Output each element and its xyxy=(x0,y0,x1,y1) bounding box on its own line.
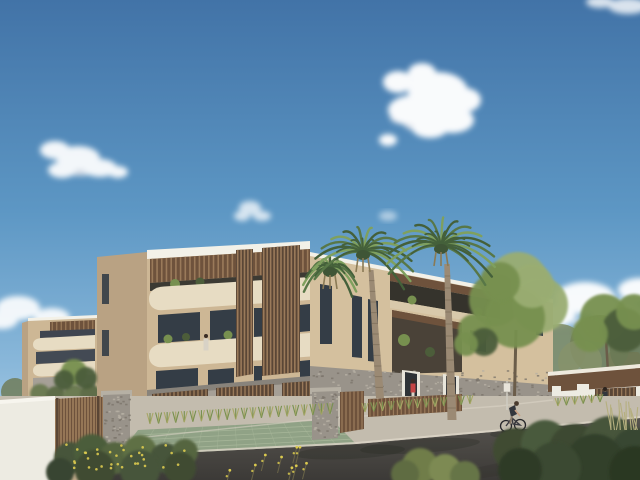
stone-speckle xyxy=(318,373,320,375)
yellow-flowers xyxy=(121,466,124,469)
stone-speckle xyxy=(427,390,429,392)
stone-speckle xyxy=(314,393,316,395)
stone-speckle xyxy=(518,393,520,395)
cloud-puff xyxy=(379,211,397,221)
twig-flower xyxy=(226,475,228,477)
yellow-flowers xyxy=(100,465,103,468)
stone-speckle xyxy=(314,397,316,399)
stone-speckle xyxy=(113,426,115,428)
stone-speckle xyxy=(104,419,106,421)
stone-speckle xyxy=(316,401,318,403)
stone-speckle xyxy=(384,371,386,373)
yellow-flowers xyxy=(162,466,165,469)
stone-speckle xyxy=(531,386,533,388)
twig-flower xyxy=(299,446,302,449)
stone-speckle xyxy=(542,380,544,382)
tree-foliage xyxy=(75,367,97,389)
stone-speckle xyxy=(353,371,355,373)
stone-speckle xyxy=(117,399,119,401)
stone-speckle xyxy=(438,389,440,391)
stone-speckle xyxy=(117,396,119,398)
cloud-puff xyxy=(234,211,250,221)
figure-body xyxy=(411,384,416,393)
yellow-flowers xyxy=(115,454,118,457)
stone-speckle xyxy=(317,429,319,431)
cloud-puff xyxy=(108,166,128,178)
stone-speckle xyxy=(518,389,520,391)
stone-speckle xyxy=(315,415,317,417)
stone-speckle xyxy=(120,403,122,405)
stone-speckle xyxy=(493,389,495,391)
stone-speckle xyxy=(334,393,336,395)
stone-speckle xyxy=(369,387,371,389)
stone-speckle xyxy=(481,394,483,396)
stone-speckle xyxy=(314,429,316,431)
yellow-flowers xyxy=(116,463,119,466)
stone-speckle xyxy=(477,379,479,381)
stone-speckle xyxy=(317,418,319,420)
stone-speckle xyxy=(336,417,338,419)
yellow-flowers xyxy=(134,462,137,465)
stone-speckle xyxy=(323,424,325,426)
twig-flower xyxy=(261,460,263,462)
stone-speckle xyxy=(313,375,315,377)
cloud-puff xyxy=(449,88,481,112)
twig-flower xyxy=(292,471,294,473)
stone-speckle xyxy=(326,430,328,432)
stone-speckle xyxy=(335,426,337,428)
stone-speckle xyxy=(501,392,503,394)
balcony-plant xyxy=(398,334,410,346)
stone-speckle xyxy=(348,373,350,375)
stone-speckle xyxy=(116,401,118,403)
stone-speckle xyxy=(384,391,386,393)
stone-speckle xyxy=(320,433,322,435)
yellow-flowers xyxy=(137,462,140,465)
driveway-gate-panel-bg xyxy=(340,391,364,433)
stone-speckle xyxy=(107,403,109,405)
stone-speckle xyxy=(334,435,336,437)
stone-speckle xyxy=(108,411,110,413)
stone-speckle xyxy=(323,397,325,399)
floor2-window xyxy=(254,308,262,338)
twig-flower xyxy=(302,468,304,470)
stone-speckle xyxy=(125,404,127,406)
yellow-flowers xyxy=(183,449,186,452)
terrace-plant xyxy=(408,296,417,305)
twig-flower xyxy=(228,469,231,472)
stone-speckle xyxy=(108,440,110,442)
stone-speckle xyxy=(125,439,127,441)
twig-flower xyxy=(277,462,279,464)
stone-speckle xyxy=(106,411,108,413)
stone-speckle xyxy=(516,386,518,388)
stone-speckle xyxy=(369,376,371,378)
stone-speckle xyxy=(129,399,131,401)
stone-speckle xyxy=(125,425,127,427)
stone-speckle xyxy=(351,380,353,382)
stone-speckle xyxy=(473,393,475,395)
tree-foliage xyxy=(54,370,74,390)
stone-speckle xyxy=(112,418,114,420)
stone-speckle xyxy=(337,372,339,374)
cloud-puff xyxy=(379,134,397,146)
stone-speckle xyxy=(537,375,539,377)
yellow-flowers xyxy=(73,467,76,470)
yellow-flowers xyxy=(76,448,79,451)
twig-flower xyxy=(288,473,290,475)
stone-speckle xyxy=(400,381,402,383)
balcony-plant xyxy=(425,347,435,357)
stone-speckle xyxy=(113,427,115,429)
stone-speckle xyxy=(113,437,115,439)
yellow-flowers xyxy=(122,449,125,452)
vertical-slat-screen xyxy=(262,245,300,376)
balcony-plant xyxy=(224,331,233,340)
stone-speckle xyxy=(390,391,392,393)
stone-speckle xyxy=(508,378,510,380)
stone-speckle xyxy=(398,384,400,386)
yellow-flowers xyxy=(141,454,144,457)
cloud-puff xyxy=(253,211,271,221)
left-wing-side-wall xyxy=(22,321,28,408)
stone-speckle xyxy=(128,415,130,417)
stone-speckle xyxy=(440,392,442,394)
stone-speckle xyxy=(368,370,370,372)
stone-speckle xyxy=(111,420,113,422)
yellow-flowers xyxy=(95,468,98,471)
stone-speckle xyxy=(337,384,339,386)
figure-head xyxy=(411,379,415,383)
yellow-flowers xyxy=(96,448,99,451)
apartment-building-render xyxy=(0,0,640,480)
yellow-flowers xyxy=(141,446,144,449)
stone-speckle xyxy=(331,378,333,380)
cloud-faint-center xyxy=(379,211,397,221)
stone-speckle xyxy=(104,423,106,425)
stone-speckle xyxy=(350,382,352,384)
stone-speckle xyxy=(332,381,334,383)
yellow-flowers xyxy=(110,467,113,470)
twig-flower xyxy=(305,462,308,465)
yellow-flowers xyxy=(73,462,76,465)
twig-flower xyxy=(254,464,257,467)
stone-speckle xyxy=(372,383,374,385)
stone-speckle xyxy=(319,371,321,373)
stone-speckle xyxy=(326,420,328,422)
yellow-flowers xyxy=(142,458,145,461)
stone-speckle xyxy=(461,372,463,374)
figure-balcony xyxy=(204,334,209,351)
stone-speckle xyxy=(316,422,318,424)
stone-speckle xyxy=(365,385,367,387)
stone-speckle xyxy=(357,374,359,376)
cloud-puff xyxy=(48,162,76,178)
stone-speckle xyxy=(321,375,323,377)
yellow-flowers xyxy=(164,444,167,447)
stone-speckle xyxy=(315,427,317,429)
stone-speckle xyxy=(121,413,123,415)
yellow-flowers xyxy=(138,452,141,455)
stone-speckle xyxy=(440,382,442,384)
yellow-flowers xyxy=(130,455,133,458)
stone-speckle xyxy=(484,384,486,386)
stone-speckle xyxy=(390,373,392,375)
stone-speckle xyxy=(329,424,331,426)
stone-speckle xyxy=(119,429,121,431)
fence-post xyxy=(56,398,59,454)
street-sign xyxy=(504,383,511,392)
yellow-flowers xyxy=(109,451,112,454)
stone-speckle xyxy=(493,376,495,378)
stone-speckle xyxy=(545,377,547,379)
yellow-flowers xyxy=(96,453,99,456)
stone-speckle xyxy=(314,396,316,398)
stone-speckle xyxy=(477,382,479,384)
figure-head xyxy=(204,334,208,338)
stone-speckle xyxy=(495,381,497,383)
twig-flower xyxy=(280,456,283,459)
stone-speckle xyxy=(435,383,437,385)
stone-speckle xyxy=(119,419,121,421)
stone-speckle xyxy=(116,411,118,413)
side-wall-window xyxy=(102,274,109,304)
stone-speckle xyxy=(119,416,121,418)
stone-speckle xyxy=(113,399,115,401)
stone-speckle xyxy=(507,370,509,372)
rider-head xyxy=(514,401,519,406)
stone-speckle xyxy=(399,390,401,392)
stone-speckle xyxy=(336,398,338,400)
stone-speckle xyxy=(316,376,318,378)
twig-flower xyxy=(295,464,298,467)
yellow-flowers xyxy=(120,444,123,447)
twig-flower xyxy=(295,446,298,449)
stone-speckle xyxy=(332,396,334,398)
stone-speckle xyxy=(106,436,108,438)
stone-speckle xyxy=(336,409,338,411)
stone-speckle xyxy=(537,391,539,393)
stone-speckle xyxy=(421,381,423,383)
stair-window xyxy=(352,295,362,358)
vertical-slat-screen xyxy=(236,249,253,377)
floor2-window xyxy=(300,304,310,332)
stone-speckle xyxy=(322,418,324,420)
floor1-window xyxy=(300,360,310,378)
figure-body xyxy=(204,339,209,351)
stone-speckle xyxy=(435,376,437,378)
cloud-puff xyxy=(408,63,436,83)
stone-speckle xyxy=(535,373,537,375)
twig-flower xyxy=(296,452,298,454)
stone-speckle xyxy=(119,427,121,429)
stone-speckle xyxy=(129,419,131,421)
stone-speckle xyxy=(482,370,484,372)
stone-speckle xyxy=(330,427,332,429)
tree-foliage xyxy=(572,316,608,352)
stone-speckle xyxy=(331,394,333,396)
stone-speckle xyxy=(531,385,533,387)
stone-speckle xyxy=(121,433,123,435)
stone-speckle xyxy=(336,428,338,430)
stone-speckle xyxy=(392,371,394,373)
yellow-flowers xyxy=(65,443,68,446)
stone-speckle xyxy=(345,374,347,376)
yellow-flowers xyxy=(110,463,113,466)
twig-flower xyxy=(251,470,253,472)
stone-speckle xyxy=(469,380,471,382)
stone-speckle xyxy=(118,434,120,436)
yellow-flowers xyxy=(84,451,87,454)
yellow-flowers xyxy=(177,463,180,466)
stone-speckle xyxy=(480,375,482,377)
yellow-flowers xyxy=(87,457,90,460)
stone-speckle xyxy=(372,392,374,394)
stone-speckle xyxy=(120,396,122,398)
stone-speckle xyxy=(112,430,114,432)
stone-speckle xyxy=(319,399,321,401)
tree-foliage xyxy=(454,332,478,356)
stone-speckle xyxy=(488,386,490,388)
figure-head xyxy=(603,387,607,391)
stone-speckle xyxy=(111,404,113,406)
twig-flower xyxy=(293,452,295,454)
twig-flower xyxy=(291,466,294,469)
stone-speckle xyxy=(367,388,369,390)
side-wall-window xyxy=(102,330,109,356)
stone-speckle xyxy=(525,378,527,380)
yellow-flowers xyxy=(88,466,91,469)
stone-speckle xyxy=(426,386,428,388)
stone-speckle xyxy=(546,372,548,374)
yellow-flowers xyxy=(170,452,173,455)
side-gate xyxy=(340,391,364,433)
stone-speckle xyxy=(324,436,326,438)
rendering-canvas xyxy=(0,0,640,480)
stair-window xyxy=(320,284,332,344)
stone-speckle xyxy=(465,380,467,382)
stone-speckle xyxy=(122,401,124,403)
stone-speckle xyxy=(321,400,323,402)
stone-speckle xyxy=(497,386,499,388)
balcony-plant xyxy=(182,333,190,341)
yellow-flowers xyxy=(144,465,147,468)
balcony-plant xyxy=(164,335,173,344)
stone-speckle xyxy=(125,417,127,419)
stone-speckle xyxy=(461,375,463,377)
stone-speckle xyxy=(430,388,432,390)
twig-flower xyxy=(264,454,267,457)
stone-speckle xyxy=(122,441,124,443)
stone-speckle xyxy=(395,394,397,396)
stone-speckle xyxy=(389,376,391,378)
stone-speckle xyxy=(332,399,334,401)
stone-speckle xyxy=(337,434,339,436)
stone-speckle xyxy=(460,390,462,392)
cloud-puff xyxy=(412,118,448,138)
stone-speckle xyxy=(116,430,118,432)
stone-speckle xyxy=(122,418,124,420)
